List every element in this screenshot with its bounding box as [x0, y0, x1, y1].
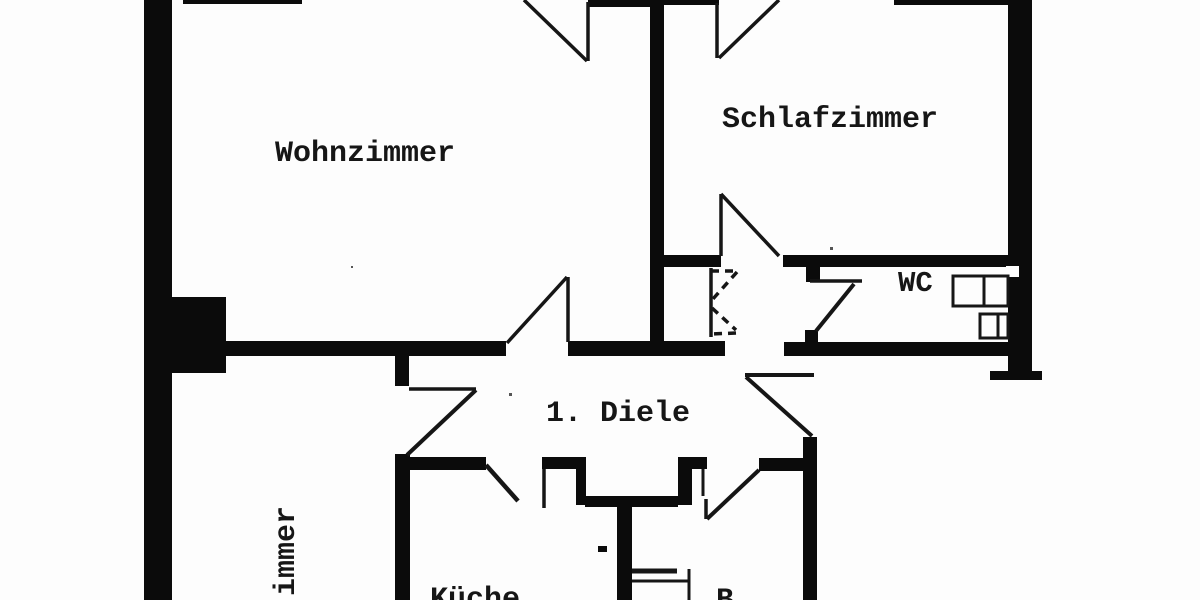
svg-text:Wohnzimmer: Wohnzimmer [275, 137, 455, 171]
svg-text:immer: immer [270, 506, 304, 596]
svg-text:Küche: Küche [430, 583, 520, 600]
svg-text:Schlafzimmer: Schlafzimmer [722, 103, 938, 137]
svg-text:WC: WC [898, 267, 933, 300]
svg-text:B: B [716, 584, 734, 600]
svg-text:1. Diele: 1. Diele [546, 397, 690, 431]
